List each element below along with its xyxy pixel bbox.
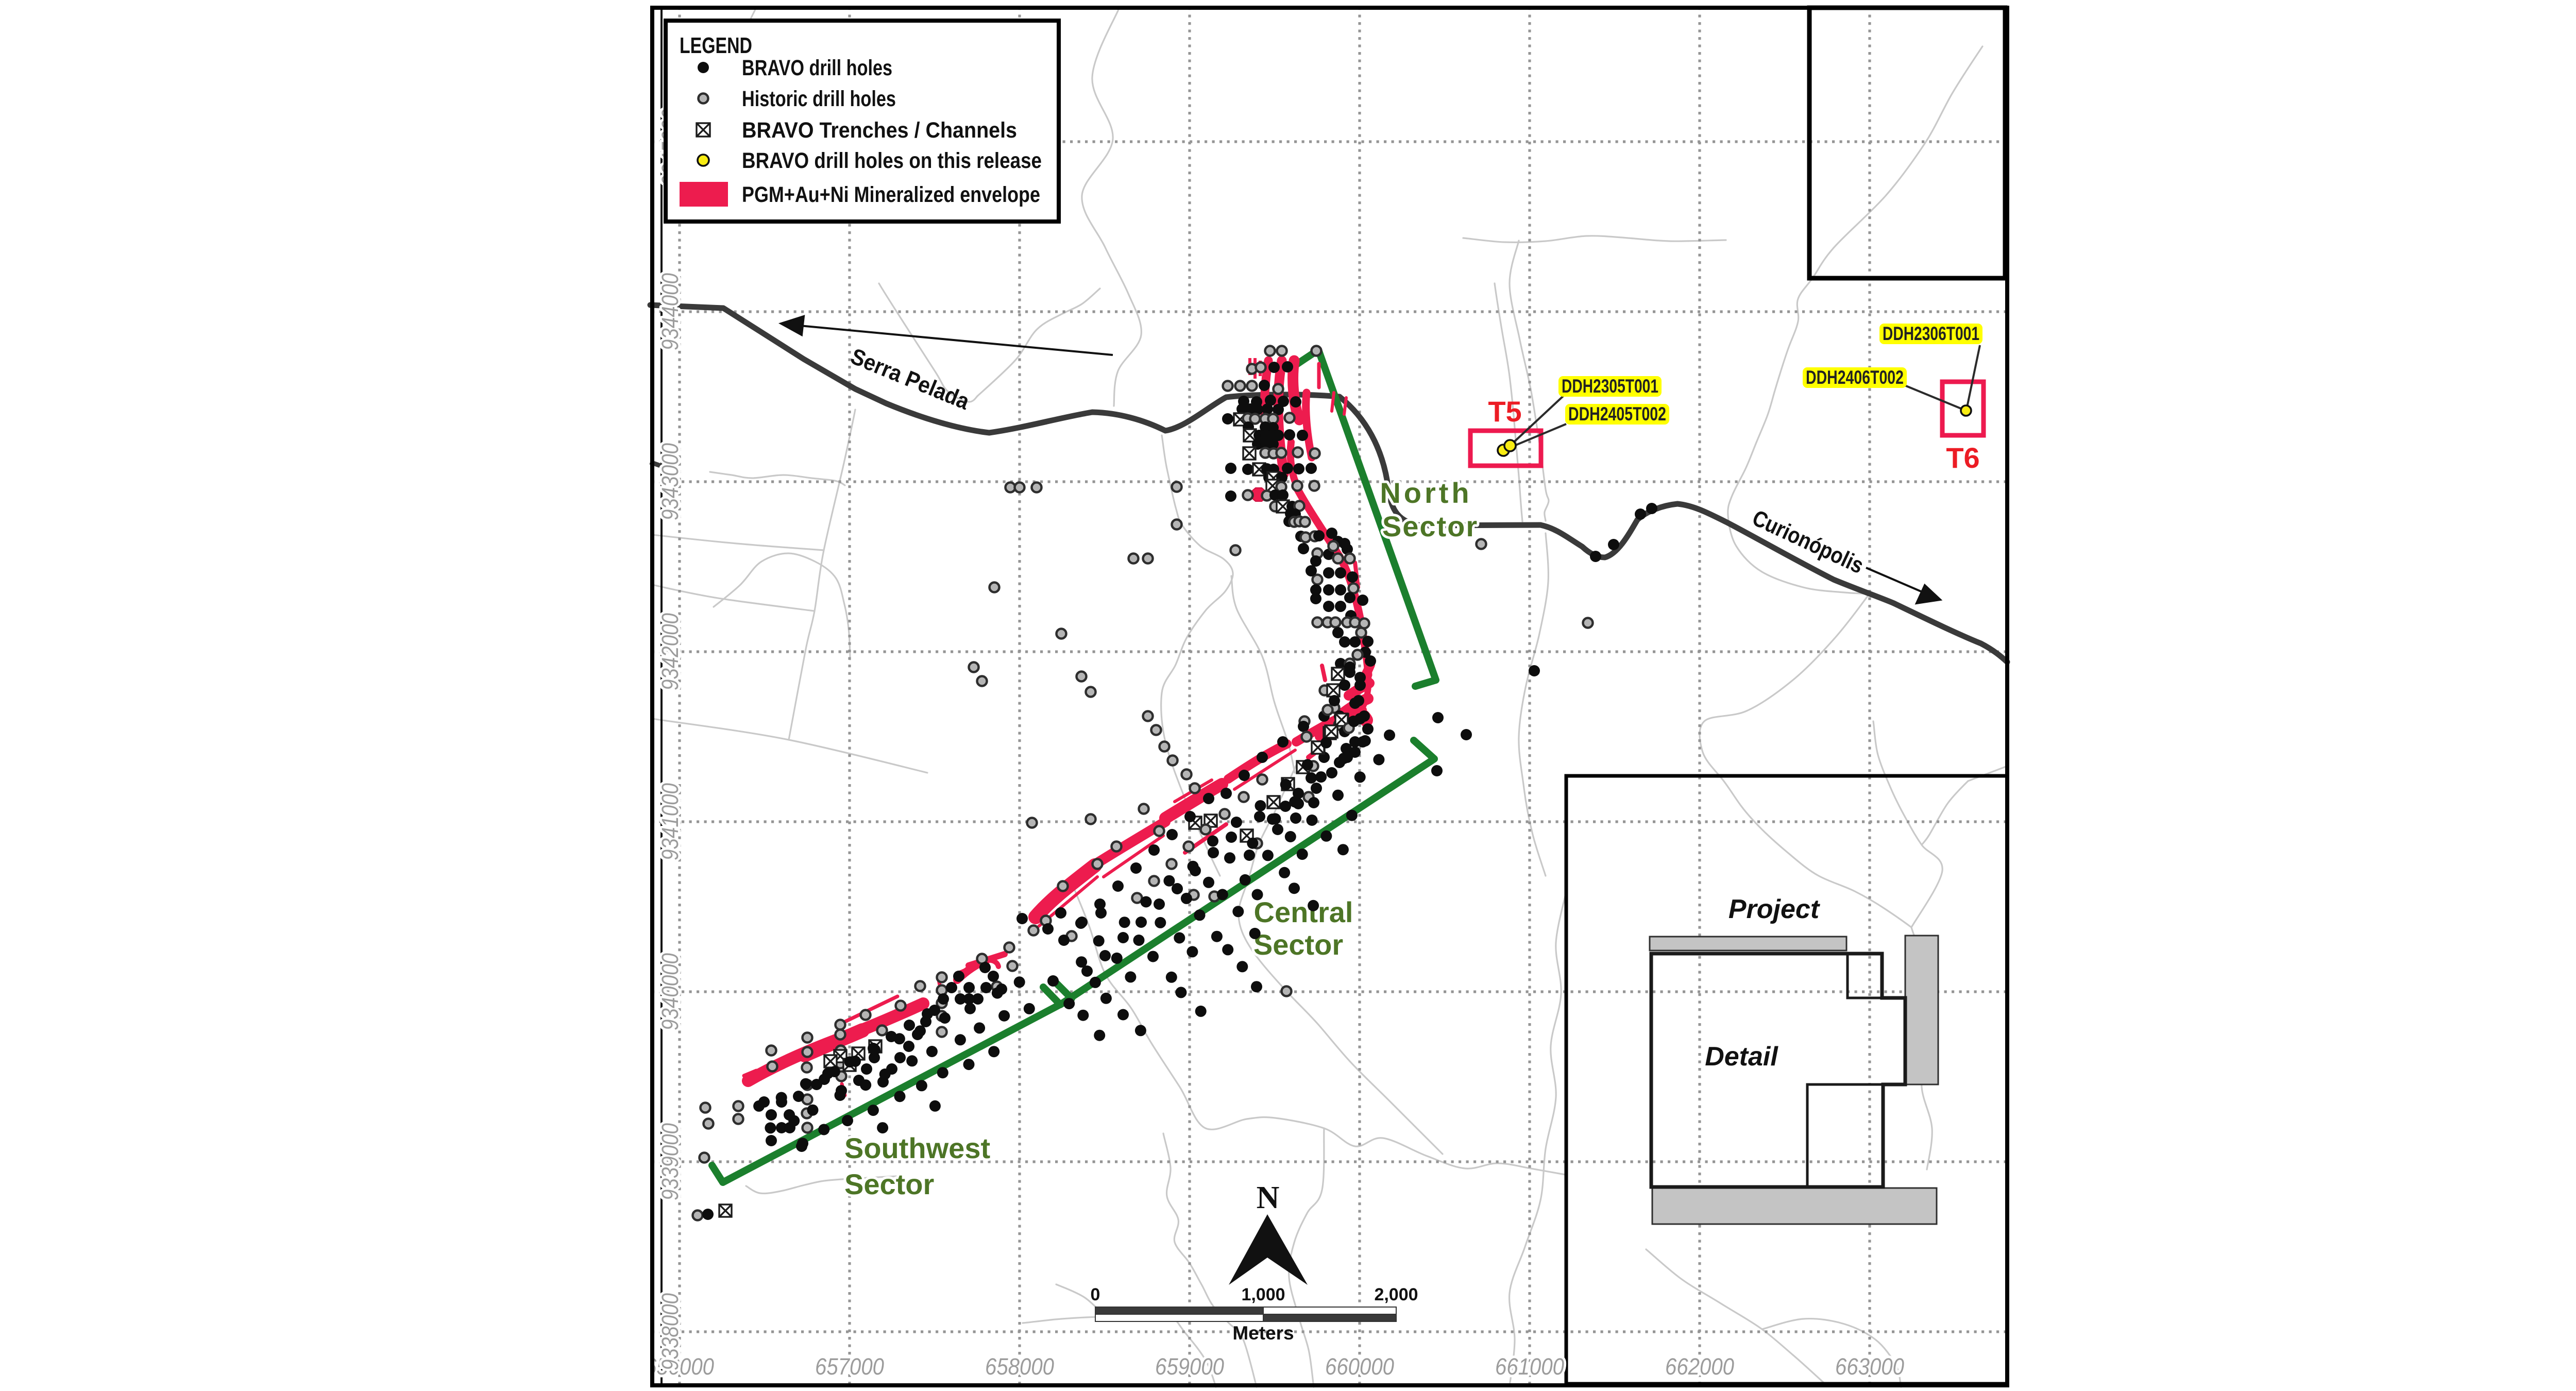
svg-text:9341000: 9341000 — [657, 783, 683, 860]
svg-text:N: N — [1257, 1180, 1280, 1215]
svg-text:658000: 658000 — [985, 1353, 1054, 1380]
svg-text:Historic drill holes: Historic drill holes — [742, 87, 896, 111]
svg-text:9343000: 9343000 — [657, 443, 683, 520]
svg-text:BRAVO Trenches / Channels: BRAVO Trenches / Channels — [742, 118, 1017, 143]
svg-text:Southwest: Southwest — [844, 1132, 990, 1164]
svg-text:DDH2305T001: DDH2305T001 — [1562, 376, 1658, 397]
svg-text:PGM+Au+Ni Mineralized envelope: PGM+Au+Ni Mineralized envelope — [742, 182, 1040, 207]
svg-text:0: 0 — [1091, 1285, 1100, 1304]
svg-text:660000: 660000 — [1325, 1353, 1394, 1380]
svg-text:LEGEND: LEGEND — [680, 33, 752, 58]
svg-text:661000: 661000 — [1495, 1353, 1564, 1380]
svg-text:Central: Central — [1254, 896, 1353, 928]
svg-text:Detail: Detail — [1705, 1042, 1778, 1072]
svg-text:DDH2306T001: DDH2306T001 — [1883, 323, 1979, 344]
svg-text:Sector: Sector — [1253, 928, 1343, 961]
svg-text:Sector: Sector — [1382, 510, 1478, 542]
svg-text:9342000: 9342000 — [657, 613, 683, 690]
svg-text:662000: 662000 — [1665, 1353, 1734, 1380]
svg-text:657000: 657000 — [815, 1353, 884, 1380]
svg-text:663000: 663000 — [1835, 1353, 1904, 1380]
svg-text:DDH2405T002: DDH2405T002 — [1568, 403, 1666, 425]
svg-text:9344000: 9344000 — [657, 273, 683, 350]
svg-text:BRAVO drill holes on this rele: BRAVO drill holes on this release — [742, 148, 1042, 173]
svg-text:Project: Project — [1728, 894, 1821, 924]
svg-text:9338000: 9338000 — [657, 1293, 683, 1370]
svg-text:Meters: Meters — [1232, 1322, 1294, 1344]
svg-text:DDH2406T002: DDH2406T002 — [1806, 367, 1904, 388]
svg-text:Sector: Sector — [844, 1168, 934, 1200]
svg-text:2,000: 2,000 — [1374, 1285, 1418, 1304]
svg-text:1,000: 1,000 — [1241, 1285, 1285, 1304]
svg-text:BRAVO drill holes: BRAVO drill holes — [742, 56, 892, 80]
svg-text:T5: T5 — [1488, 395, 1521, 428]
svg-text:9340000: 9340000 — [657, 953, 683, 1030]
svg-text:659000: 659000 — [1155, 1353, 1224, 1380]
svg-text:North: North — [1380, 477, 1472, 509]
svg-text:9339000: 9339000 — [657, 1123, 683, 1200]
svg-text:T6: T6 — [1946, 442, 1979, 474]
